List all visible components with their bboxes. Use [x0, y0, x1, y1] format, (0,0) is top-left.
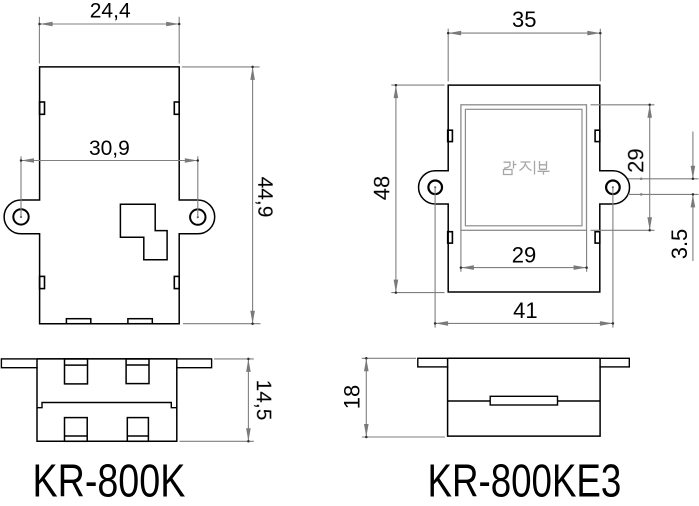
svg-text:18: 18 — [340, 385, 365, 409]
svg-text:44,9: 44,9 — [253, 177, 276, 218]
svg-text:24,4: 24,4 — [90, 0, 131, 23]
svg-text:29: 29 — [512, 243, 536, 268]
svg-text:KR-800KE3: KR-800KE3 — [428, 454, 622, 506]
svg-text:29: 29 — [623, 148, 648, 172]
svg-text:14,5: 14,5 — [252, 380, 275, 421]
svg-text:KR-800K: KR-800K — [33, 455, 186, 506]
svg-text:3.5: 3.5 — [667, 229, 692, 260]
svg-text:35: 35 — [512, 7, 536, 32]
svg-text:41: 41 — [513, 298, 537, 323]
svg-text:48: 48 — [369, 176, 394, 200]
svg-text:30,9: 30,9 — [89, 137, 130, 160]
